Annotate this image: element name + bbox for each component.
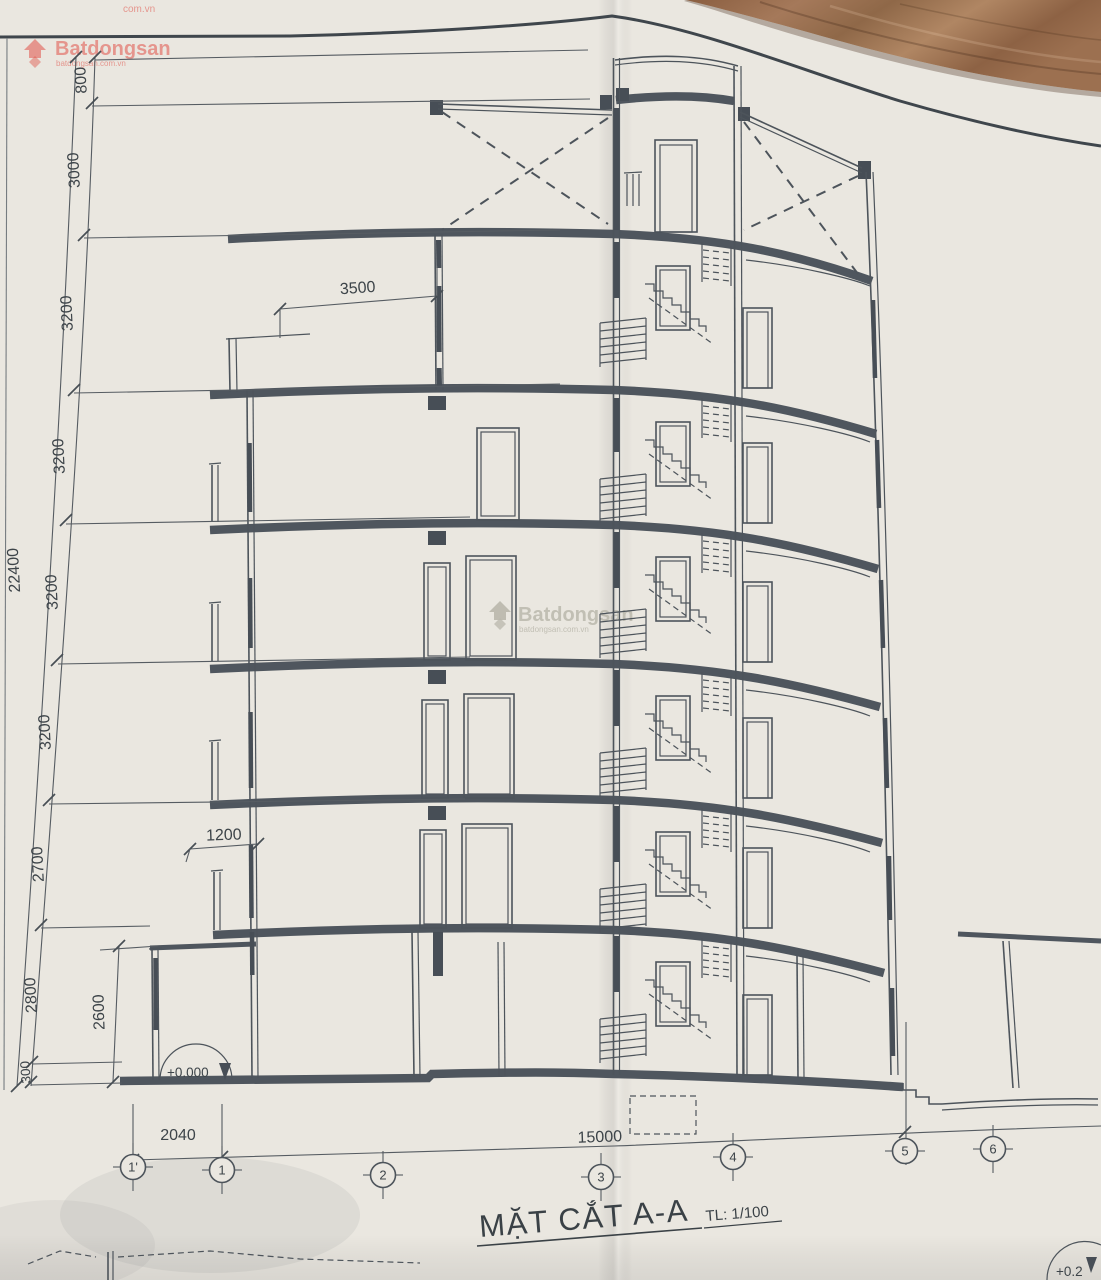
grid-bubble-label: 4 <box>729 1150 736 1165</box>
dim-total-22400: 22400 <box>5 547 24 592</box>
watermark-tagline: batdongsan.com.vn <box>519 625 589 634</box>
dim-2700: 2700 <box>29 846 48 883</box>
dim-15000: 15000 <box>577 1128 622 1147</box>
dim-3200-c: 3200 <box>43 574 62 611</box>
photo-of-section-drawing: { "watermark": { "brand": "Batdongsan", … <box>0 0 1101 1280</box>
section-drawing-canvas: com.vn Batdongsan batdongsan.com.vn Batd… <box>0 0 1101 1280</box>
tower-louver-window <box>624 172 642 206</box>
dim-2040: 2040 <box>160 1127 196 1144</box>
watermark-suffix: com.vn <box>123 4 155 15</box>
dim-3200-d: 3200 <box>36 714 55 751</box>
watermark-brand: Batdongsan <box>518 604 634 626</box>
paper-sheet <box>0 0 1101 1280</box>
grid-bubble-label: 5 <box>901 1144 908 1159</box>
grid-bubble-label: 3 <box>597 1170 604 1185</box>
dim-2800: 2800 <box>22 977 41 1014</box>
slab-tower-roof <box>616 96 734 101</box>
dim-3200-a: 3200 <box>58 295 77 332</box>
dim-800: 800 <box>72 66 90 94</box>
grid-bubble-label: 6 <box>989 1142 996 1157</box>
dim-3000: 3000 <box>65 152 84 189</box>
dim-300: 300 <box>17 1061 33 1084</box>
level-partial-label: +0.2 <box>1056 1264 1083 1279</box>
dim-3200-b: 3200 <box>50 438 69 475</box>
dim-1200: 1200 <box>206 826 242 844</box>
dim-2600: 2600 <box>90 994 108 1030</box>
dim-3500: 3500 <box>339 279 376 298</box>
grid-bubble-label: 1 <box>218 1163 225 1178</box>
paper-edge-shadow <box>0 1235 1101 1280</box>
level-zero-label: +0.000 <box>167 1065 209 1080</box>
watermark-brand: Batdongsan <box>55 38 171 60</box>
grid-bubble-label: 1' <box>128 1160 138 1175</box>
grid-bubble-label: 2 <box>379 1168 386 1183</box>
